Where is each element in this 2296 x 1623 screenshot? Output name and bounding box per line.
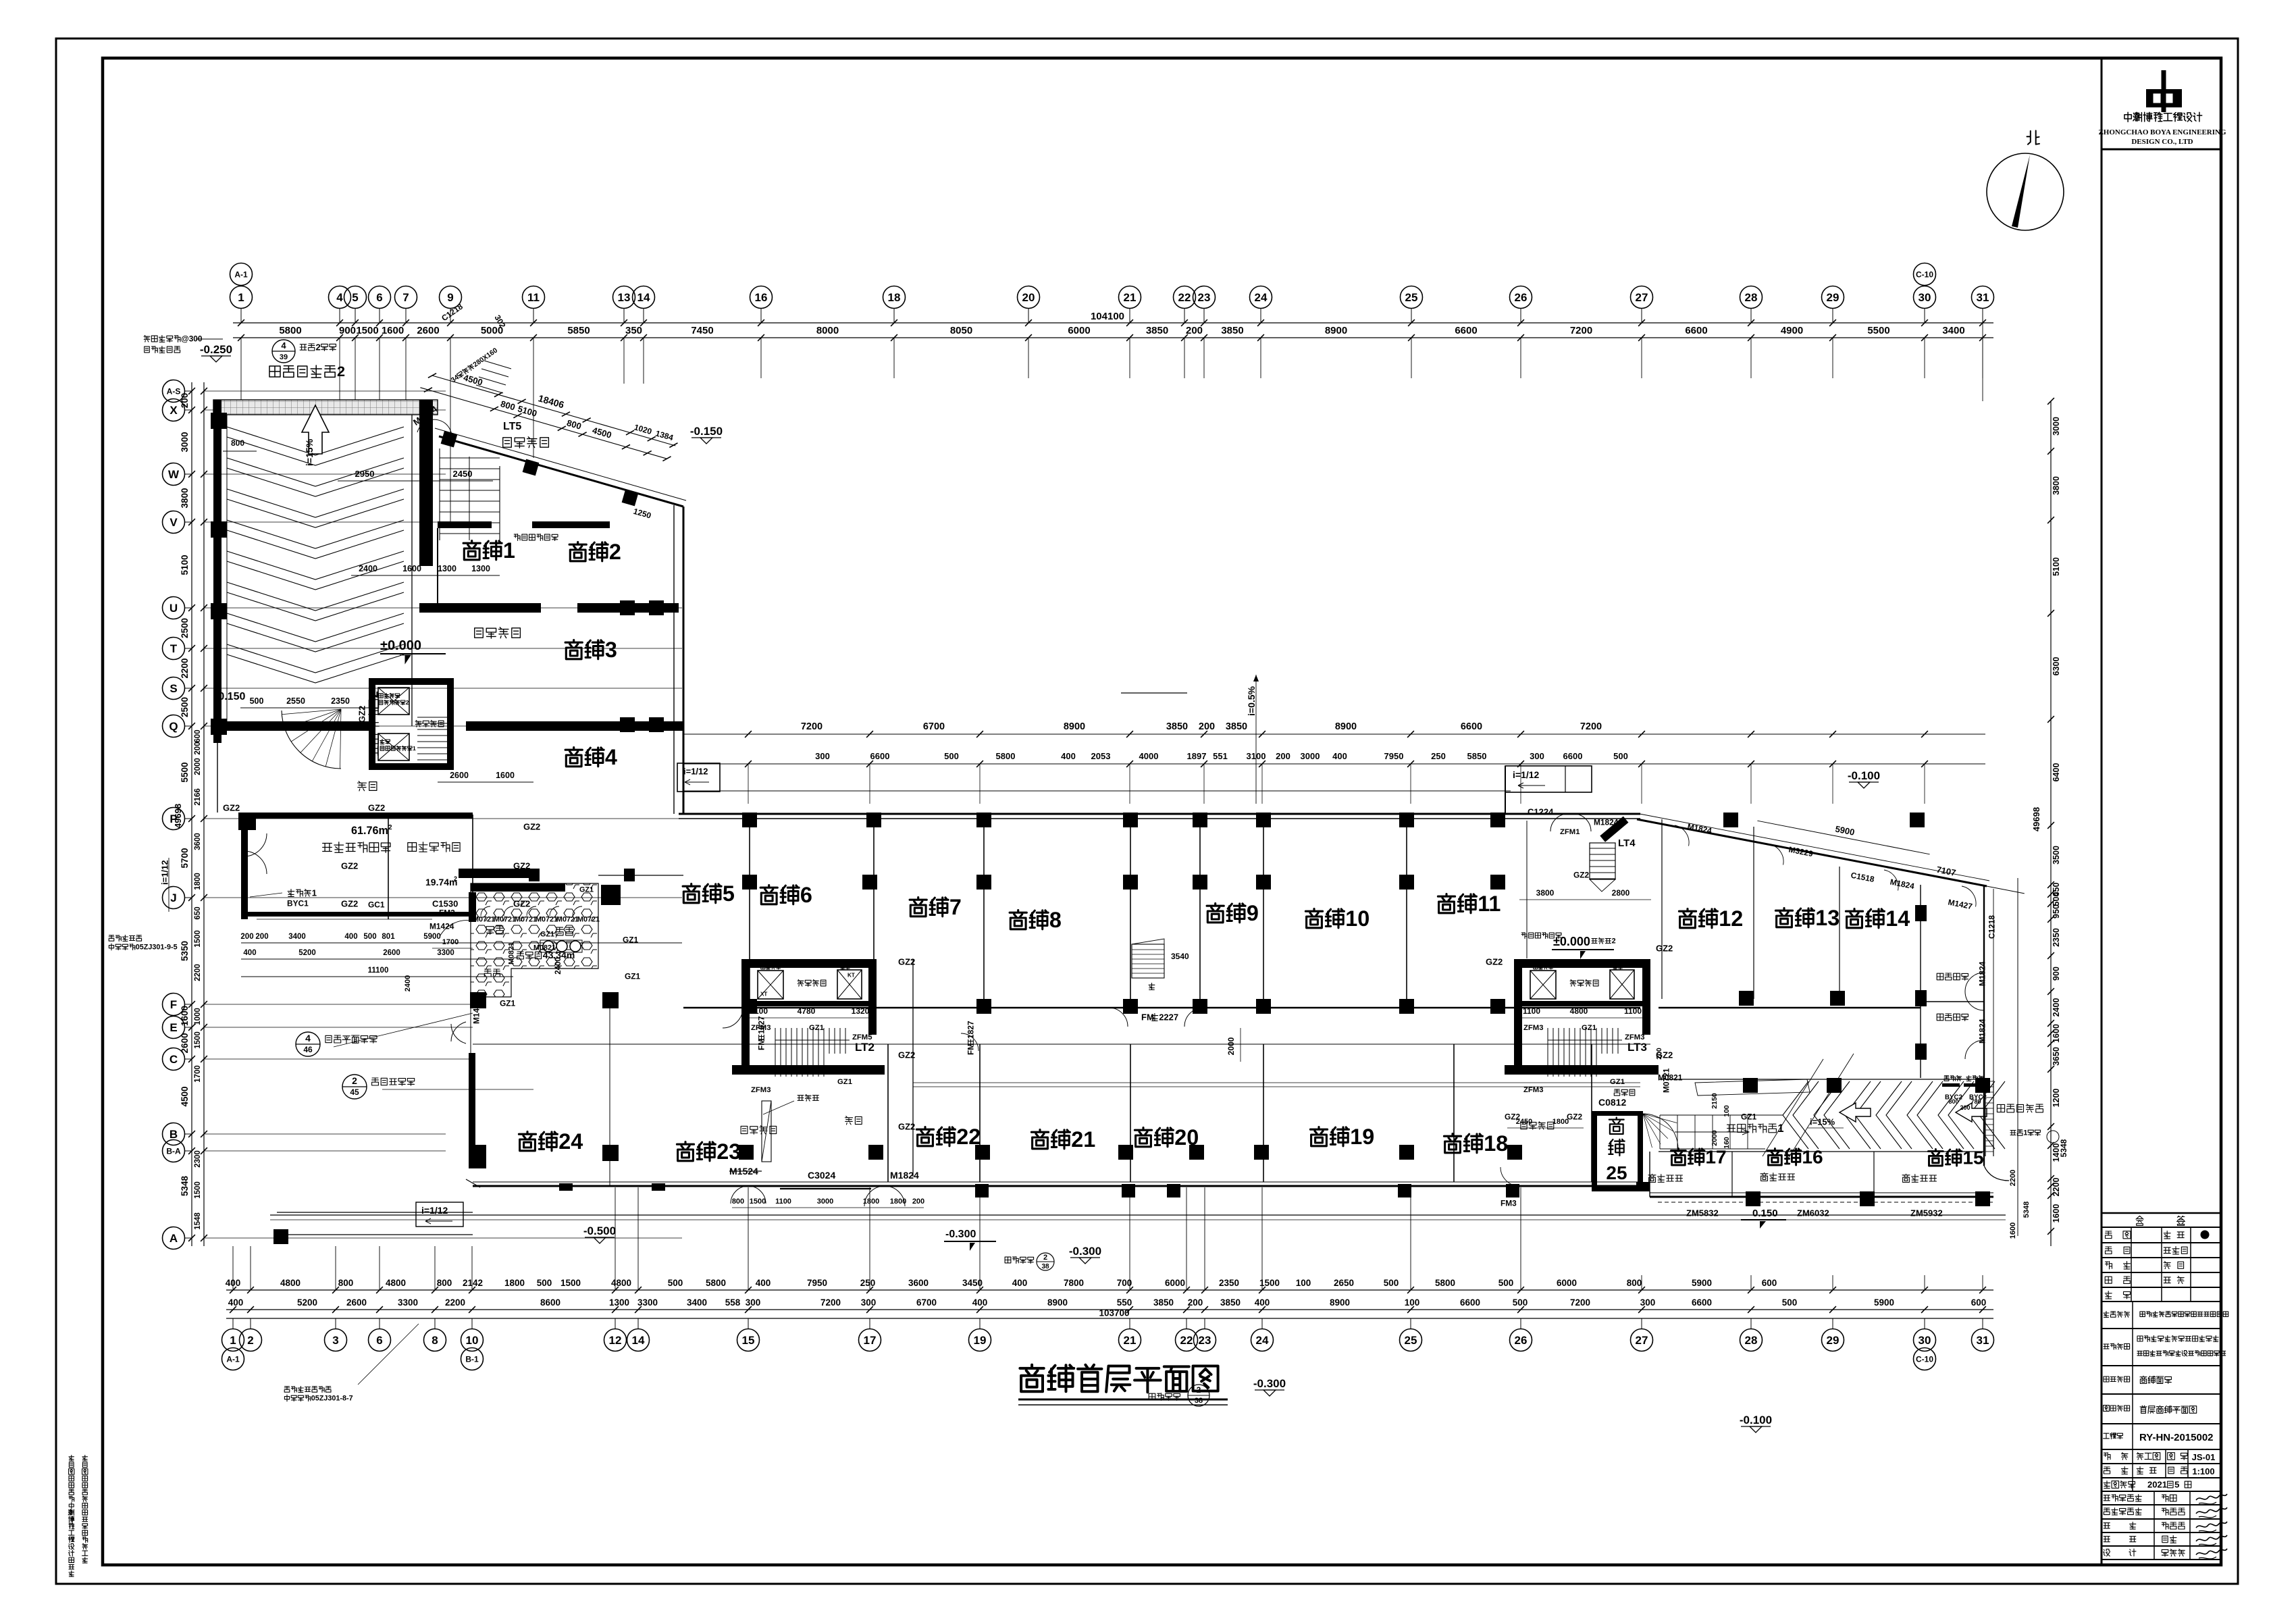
svg-text:6600: 6600 (1692, 1297, 1712, 1308)
svg-text:2300: 2300 (194, 1150, 202, 1168)
svg-text:GZ2: GZ2 (357, 706, 367, 723)
svg-text:1500: 1500 (194, 1031, 202, 1049)
svg-text:3650: 3650 (2052, 1047, 2061, 1066)
svg-text:5500: 5500 (180, 762, 190, 782)
svg-text:4800: 4800 (1570, 1006, 1588, 1016)
svg-text:5200: 5200 (298, 949, 316, 957)
svg-text:3600: 3600 (194, 833, 202, 850)
svg-text:-0.300: -0.300 (1253, 1377, 1286, 1390)
svg-text:200: 200 (1655, 1048, 1663, 1060)
svg-text:3800: 3800 (1536, 888, 1555, 898)
svg-text:800: 800 (231, 438, 244, 448)
svg-text:4800: 4800 (280, 1278, 301, 1288)
svg-text:1: 1 (312, 887, 317, 898)
svg-text:4: 4 (281, 340, 286, 351)
svg-text:2600: 2600 (346, 1297, 367, 1308)
svg-text:250: 250 (1431, 751, 1446, 761)
svg-text:1800: 1800 (890, 1197, 906, 1206)
svg-text:2600: 2600 (450, 771, 469, 780)
svg-text:M1824: M1824 (890, 1170, 919, 1181)
svg-text:7950: 7950 (807, 1278, 827, 1288)
svg-text:7200: 7200 (820, 1297, 841, 1308)
svg-text:S: S (169, 682, 177, 695)
svg-text:1100: 1100 (1523, 1006, 1540, 1016)
svg-text:4: 4 (605, 745, 617, 769)
svg-text:1700: 1700 (194, 1065, 202, 1083)
svg-text:3400: 3400 (288, 933, 306, 941)
svg-text:8900: 8900 (1335, 721, 1357, 732)
svg-text:i=1/12: i=1/12 (421, 1205, 448, 1216)
svg-text:400: 400 (756, 1278, 771, 1288)
svg-text:20: 20 (1174, 1125, 1199, 1150)
svg-text:23: 23 (1198, 291, 1211, 304)
svg-text:2021: 2021 (2147, 1479, 2167, 1489)
svg-text:XT: XT (760, 991, 767, 998)
svg-text:200: 200 (255, 933, 268, 941)
svg-text:15: 15 (742, 1334, 755, 1347)
svg-text:22: 22 (956, 1125, 981, 1149)
svg-text:M0721: M0721 (494, 916, 516, 924)
svg-text:M1824: M1824 (1978, 1019, 1987, 1044)
svg-text:1100: 1100 (775, 1197, 791, 1206)
svg-text:400: 400 (228, 1297, 244, 1308)
svg-text:A-1: A-1 (226, 1354, 240, 1364)
svg-text:3000: 3000 (2052, 417, 2061, 436)
svg-text:31: 31 (1977, 291, 1989, 304)
svg-text:2550: 2550 (286, 696, 305, 706)
svg-text:LT2: LT2 (855, 1041, 875, 1054)
svg-text:2: 2 (406, 699, 409, 706)
svg-text:3500: 3500 (2052, 846, 2061, 865)
svg-text:9: 9 (447, 291, 453, 304)
svg-text:200: 200 (194, 742, 202, 754)
svg-text:2350: 2350 (1219, 1278, 1239, 1288)
svg-text:ZFM3: ZFM3 (1523, 1086, 1544, 1094)
svg-text:14: 14 (1885, 906, 1910, 931)
svg-text:1800: 1800 (504, 1278, 525, 1288)
svg-text:3000: 3000 (1301, 751, 1320, 761)
svg-text:1700: 1700 (442, 938, 459, 946)
svg-text:2350: 2350 (2052, 928, 2061, 947)
svg-text:1600: 1600 (2052, 1204, 2061, 1223)
svg-text:500: 500 (1384, 1278, 1399, 1288)
svg-text:500: 500 (1782, 1297, 1798, 1308)
svg-text:4800: 4800 (611, 1278, 631, 1288)
svg-text:2400: 2400 (2052, 998, 2061, 1017)
svg-text:6: 6 (376, 291, 382, 304)
svg-text:6600: 6600 (1563, 751, 1583, 761)
svg-text:6400: 6400 (2052, 763, 2061, 782)
svg-text:500: 500 (1513, 1297, 1528, 1308)
svg-text:1: 1 (1778, 1123, 1784, 1135)
svg-text:16: 16 (755, 291, 768, 304)
svg-text:558: 558 (725, 1297, 741, 1308)
svg-text:i=1/12: i=1/12 (683, 766, 708, 776)
svg-text:1500: 1500 (750, 1197, 766, 1206)
svg-text:200: 200 (1960, 1104, 1970, 1111)
svg-text:4000: 4000 (1139, 751, 1159, 761)
svg-text:15: 15 (1962, 1147, 1983, 1168)
svg-text:GZ1: GZ1 (500, 999, 516, 1008)
svg-text:8050: 8050 (950, 325, 972, 336)
svg-text:17: 17 (1705, 1146, 1726, 1167)
svg-text:2500: 2500 (180, 697, 190, 717)
svg-text:24: 24 (1256, 1334, 1269, 1347)
svg-text:12: 12 (609, 1334, 622, 1347)
svg-text:3300: 3300 (437, 949, 454, 957)
svg-text:11: 11 (1478, 892, 1501, 916)
svg-text:1600: 1600 (402, 564, 421, 573)
svg-text:C3024: C3024 (808, 1170, 835, 1181)
svg-text:6000: 6000 (1557, 1278, 1577, 1288)
svg-text:38: 38 (1195, 1397, 1203, 1405)
svg-text:400: 400 (972, 1297, 988, 1308)
svg-text:2: 2 (388, 824, 392, 831)
svg-text:500: 500 (537, 1278, 552, 1288)
svg-text:800: 800 (437, 1278, 452, 1288)
svg-text:800: 800 (732, 1197, 744, 1206)
svg-text:2500: 2500 (180, 618, 190, 638)
svg-text:800: 800 (1948, 1098, 1958, 1105)
svg-text:30: 30 (1919, 1334, 1931, 1347)
svg-text:200: 200 (1276, 751, 1290, 761)
svg-text:100: 100 (1405, 1297, 1420, 1308)
svg-text:300: 300 (1640, 1297, 1656, 1308)
svg-text:5348: 5348 (2059, 1139, 2068, 1157)
svg-text:5: 5 (352, 291, 358, 304)
svg-text:4: 4 (336, 291, 343, 304)
svg-text:24: 24 (558, 1129, 583, 1154)
svg-text:18: 18 (1484, 1131, 1508, 1156)
svg-text:GZ1: GZ1 (1582, 1024, 1596, 1032)
svg-text:05ZJ301-9-5: 05ZJ301-9-5 (136, 944, 178, 952)
svg-text:3600: 3600 (908, 1278, 929, 1288)
svg-text:7200: 7200 (1570, 1297, 1590, 1308)
svg-text:19: 19 (1350, 1125, 1374, 1149)
svg-text:500: 500 (1613, 751, 1628, 761)
svg-text:6600: 6600 (870, 751, 890, 761)
svg-text:GZ2: GZ2 (1567, 1112, 1583, 1122)
svg-text:27: 27 (1636, 291, 1648, 304)
svg-text:B: B (169, 1128, 178, 1141)
svg-text:B-A: B-A (166, 1146, 181, 1156)
svg-text:2400: 2400 (359, 564, 377, 573)
svg-text:800: 800 (338, 1278, 354, 1288)
svg-text:1500: 1500 (560, 1278, 581, 1288)
svg-text:45: 45 (350, 1087, 359, 1097)
svg-text:2600: 2600 (417, 325, 439, 336)
svg-text:950: 950 (2052, 904, 2061, 919)
svg-text:U: U (169, 602, 178, 615)
svg-text:9: 9 (1247, 901, 1259, 925)
svg-text:8000: 8000 (816, 325, 839, 336)
svg-text:5348: 5348 (2023, 1202, 2031, 1218)
svg-text:551: 551 (1213, 751, 1228, 761)
svg-text:5800: 5800 (996, 751, 1016, 761)
svg-text:1897: 1897 (1187, 751, 1207, 761)
svg-text:2150: 2150 (1711, 1093, 1719, 1109)
svg-text:2450: 2450 (1516, 1118, 1532, 1126)
svg-text:1500: 1500 (1259, 1278, 1280, 1288)
svg-text:29: 29 (1827, 1334, 1840, 1347)
svg-text:300: 300 (1530, 751, 1544, 761)
svg-text:0.150: 0.150 (1752, 1208, 1778, 1219)
svg-text:1500: 1500 (356, 325, 378, 336)
svg-text:J: J (170, 892, 176, 904)
svg-text:LT4: LT4 (1618, 838, 1636, 849)
svg-text:B-1: B-1 (465, 1354, 479, 1364)
svg-text:1300: 1300 (609, 1297, 629, 1308)
svg-text:800: 800 (1627, 1278, 1642, 1288)
svg-text:7800: 7800 (1064, 1278, 1084, 1288)
svg-text:3850: 3850 (1221, 325, 1243, 336)
svg-text:19.74m: 19.74m (425, 877, 457, 887)
svg-text:200: 200 (1186, 325, 1203, 336)
svg-text:31: 31 (1977, 1334, 1989, 1347)
svg-text:6: 6 (376, 1334, 382, 1347)
svg-text:21: 21 (1071, 1127, 1095, 1152)
svg-text:i=1/12: i=1/12 (1513, 769, 1540, 780)
svg-text:-0.100: -0.100 (1848, 769, 1880, 782)
svg-text:46: 46 (303, 1045, 313, 1054)
svg-text:3540: 3540 (1171, 952, 1189, 961)
svg-text:19: 19 (974, 1334, 987, 1347)
svg-text:1100: 1100 (750, 1006, 768, 1016)
svg-text:14: 14 (632, 1334, 645, 1347)
svg-text:-0.500: -0.500 (583, 1225, 616, 1237)
svg-text:500: 500 (2052, 892, 2061, 906)
svg-text:GZ2: GZ2 (1486, 956, 1503, 967)
svg-text:23: 23 (1199, 1334, 1211, 1347)
svg-text:6700: 6700 (923, 721, 945, 732)
svg-text:1800: 1800 (1553, 1118, 1569, 1126)
svg-text:200: 200 (240, 933, 253, 941)
svg-text:38: 38 (1041, 1263, 1049, 1270)
svg-text:900: 900 (339, 325, 356, 336)
svg-text:ZM6032: ZM6032 (1797, 1208, 1829, 1218)
svg-text:300: 300 (861, 1297, 877, 1308)
svg-text:i=15%: i=15% (1810, 1116, 1835, 1127)
svg-text:7: 7 (402, 291, 409, 304)
svg-text:7450: 7450 (691, 325, 713, 336)
svg-text:500: 500 (944, 751, 959, 761)
svg-text:-0.150: -0.150 (215, 691, 245, 702)
svg-text:3400: 3400 (687, 1297, 707, 1308)
svg-text:JS-01: JS-01 (2192, 1452, 2216, 1462)
svg-text:4780: 4780 (798, 1006, 816, 1016)
svg-text:3000: 3000 (180, 432, 190, 452)
svg-text:-0.150: -0.150 (690, 425, 723, 438)
svg-text:3850: 3850 (1220, 1297, 1241, 1308)
svg-text:7200: 7200 (801, 721, 823, 732)
svg-text:KT: KT (847, 973, 855, 979)
svg-text:ZFM5: ZFM5 (852, 1033, 872, 1041)
svg-text:3850: 3850 (1166, 721, 1188, 732)
svg-text:GZ1: GZ1 (837, 1078, 852, 1086)
svg-text:12: 12 (1719, 906, 1743, 931)
svg-text:5800: 5800 (279, 325, 301, 336)
svg-text:5200: 5200 (297, 1297, 317, 1308)
svg-text:A-1: A-1 (234, 269, 248, 279)
svg-text:i=15%: i=15% (304, 438, 315, 466)
svg-text:1800: 1800 (194, 873, 202, 890)
svg-text:E: E (169, 1021, 177, 1034)
svg-text:4500: 4500 (180, 1086, 190, 1106)
svg-text:500: 500 (250, 696, 264, 706)
svg-text:7: 7 (949, 895, 962, 919)
svg-text:M0821: M0821 (508, 942, 516, 964)
svg-text:3800: 3800 (180, 488, 190, 508)
svg-text:GZ2: GZ2 (341, 898, 358, 908)
svg-text:X: X (169, 404, 178, 417)
svg-text:8900: 8900 (1064, 721, 1085, 732)
svg-text:25: 25 (1405, 1334, 1417, 1347)
svg-text:3850: 3850 (1146, 325, 1168, 336)
svg-text:1:100: 1:100 (2192, 1466, 2214, 1476)
svg-text:3450: 3450 (962, 1278, 983, 1288)
svg-text:2650: 2650 (1334, 1278, 1354, 1288)
svg-text:8900: 8900 (1325, 325, 1347, 336)
svg-text:3300: 3300 (637, 1297, 658, 1308)
svg-text:5: 5 (2174, 1479, 2179, 1489)
svg-text:A-S: A-S (167, 386, 181, 396)
svg-text:27: 27 (1636, 1334, 1648, 1347)
svg-text:-0.300: -0.300 (1069, 1245, 1101, 1258)
svg-text:FM: FM (1141, 1012, 1154, 1022)
svg-text:@300: @300 (181, 334, 203, 344)
svg-text:2053: 2053 (1091, 751, 1111, 761)
svg-text:400: 400 (243, 949, 256, 957)
svg-text:5900: 5900 (1692, 1278, 1712, 1288)
svg-text:Q: Q (169, 720, 178, 733)
svg-text:100: 100 (1296, 1278, 1311, 1288)
svg-text:5100: 5100 (2052, 557, 2061, 576)
svg-text:C1224: C1224 (1528, 806, 1554, 817)
svg-text:i=0.5%: i=0.5% (1246, 686, 1257, 716)
svg-text:2: 2 (247, 1334, 253, 1347)
svg-text:ZFM3: ZFM3 (1523, 1024, 1544, 1032)
svg-text:61.76m: 61.76m (351, 825, 388, 837)
svg-text:i=1/12: i=1/12 (159, 860, 169, 885)
svg-text:6000: 6000 (1165, 1278, 1185, 1288)
svg-text:11100: 11100 (368, 967, 389, 975)
svg-text:GZ2: GZ2 (341, 860, 358, 871)
svg-text:T: T (170, 642, 178, 655)
svg-text:1600: 1600 (382, 325, 404, 336)
svg-text:200: 200 (1199, 721, 1215, 732)
svg-text:3: 3 (332, 1334, 338, 1347)
svg-text:24: 24 (1255, 291, 1268, 304)
svg-text:17: 17 (864, 1334, 877, 1347)
svg-text:8600: 8600 (540, 1297, 560, 1308)
svg-text:13: 13 (618, 291, 631, 304)
svg-text:300: 300 (746, 1297, 761, 1308)
svg-text:1: 1 (413, 745, 416, 752)
svg-text:2450: 2450 (453, 469, 473, 479)
svg-text:2200: 2200 (194, 964, 202, 981)
svg-text:5: 5 (723, 881, 735, 906)
svg-text:05ZJ301-8-7: 05ZJ301-8-7 (311, 1395, 353, 1403)
svg-text:C1530: C1530 (432, 898, 458, 908)
svg-text:2800: 2800 (1612, 888, 1630, 898)
svg-text:8900: 8900 (1047, 1297, 1068, 1308)
svg-text:2: 2 (454, 875, 457, 882)
svg-text:350: 350 (625, 325, 642, 336)
svg-text:1: 1 (238, 291, 244, 304)
svg-text:250: 250 (860, 1278, 876, 1288)
svg-text:ZFM3: ZFM3 (751, 1086, 771, 1094)
svg-text:8: 8 (432, 1334, 438, 1347)
svg-text:1000: 1000 (194, 1008, 202, 1025)
svg-text:C-10: C-10 (1916, 1354, 1933, 1364)
svg-text:28: 28 (1745, 291, 1758, 304)
svg-text:21: 21 (1124, 291, 1137, 304)
svg-text:5700: 5700 (180, 848, 190, 868)
svg-text:ZM5832: ZM5832 (1686, 1208, 1719, 1218)
svg-text:300: 300 (815, 751, 830, 761)
svg-text:28: 28 (1745, 1334, 1758, 1347)
svg-text:6600: 6600 (1685, 325, 1707, 336)
svg-text:FM3: FM3 (1501, 1199, 1517, 1208)
svg-text:DESIGN CO., LTD: DESIGN CO., LTD (2131, 138, 2193, 146)
svg-text:2: 2 (1043, 1254, 1047, 1262)
svg-text:-0.250: -0.250 (200, 343, 232, 356)
svg-text:2: 2 (352, 1075, 357, 1086)
svg-text:GZ2: GZ2 (368, 802, 385, 813)
svg-text:550: 550 (1117, 1297, 1132, 1308)
svg-text:200: 200 (912, 1197, 924, 1206)
svg-text:29: 29 (1827, 291, 1840, 304)
svg-text:W: W (168, 468, 180, 481)
svg-text:2000: 2000 (1711, 1130, 1719, 1146)
svg-text:FM: FM (966, 1044, 976, 1055)
svg-text:23: 23 (716, 1139, 741, 1164)
svg-text:600: 600 (1762, 1278, 1777, 1288)
svg-text:900: 900 (2052, 967, 2061, 981)
svg-text:GZ1: GZ1 (809, 1024, 824, 1032)
svg-text:5800: 5800 (706, 1278, 726, 1288)
svg-text:1500: 1500 (194, 930, 202, 948)
svg-text:2142: 2142 (463, 1278, 483, 1288)
svg-text:2000: 2000 (194, 758, 202, 775)
svg-text:-0.100: -0.100 (1740, 1414, 1772, 1426)
svg-text:100: 100 (1723, 1105, 1731, 1117)
svg-text:20: 20 (1022, 291, 1035, 304)
svg-text:801: 801 (382, 933, 395, 941)
svg-text:A: A (169, 1232, 178, 1245)
svg-text:400: 400 (1012, 1278, 1028, 1288)
svg-text:5100: 5100 (180, 555, 190, 575)
svg-text:700: 700 (1117, 1278, 1132, 1288)
svg-text:1600: 1600 (180, 1006, 190, 1026)
svg-text:GZ1: GZ1 (623, 935, 639, 945)
svg-text:400: 400 (344, 933, 357, 941)
svg-text:4800: 4800 (386, 1278, 406, 1288)
svg-text:1300: 1300 (438, 564, 456, 573)
svg-text:2200: 2200 (445, 1297, 465, 1308)
svg-text:2350: 2350 (331, 696, 350, 706)
svg-text:3: 3 (605, 638, 617, 662)
svg-text:C1218: C1218 (1987, 915, 1997, 939)
svg-text:49698: 49698 (173, 804, 183, 828)
svg-text:M0721: M0721 (556, 916, 579, 924)
svg-text:5900: 5900 (423, 933, 441, 941)
svg-text:BYC1: BYC1 (287, 899, 309, 908)
svg-text:ZFM3: ZFM3 (751, 1024, 771, 1032)
svg-text:FM2: FM2 (439, 908, 455, 918)
svg-text:6: 6 (800, 883, 812, 907)
svg-text:2200: 2200 (2009, 1170, 2017, 1186)
